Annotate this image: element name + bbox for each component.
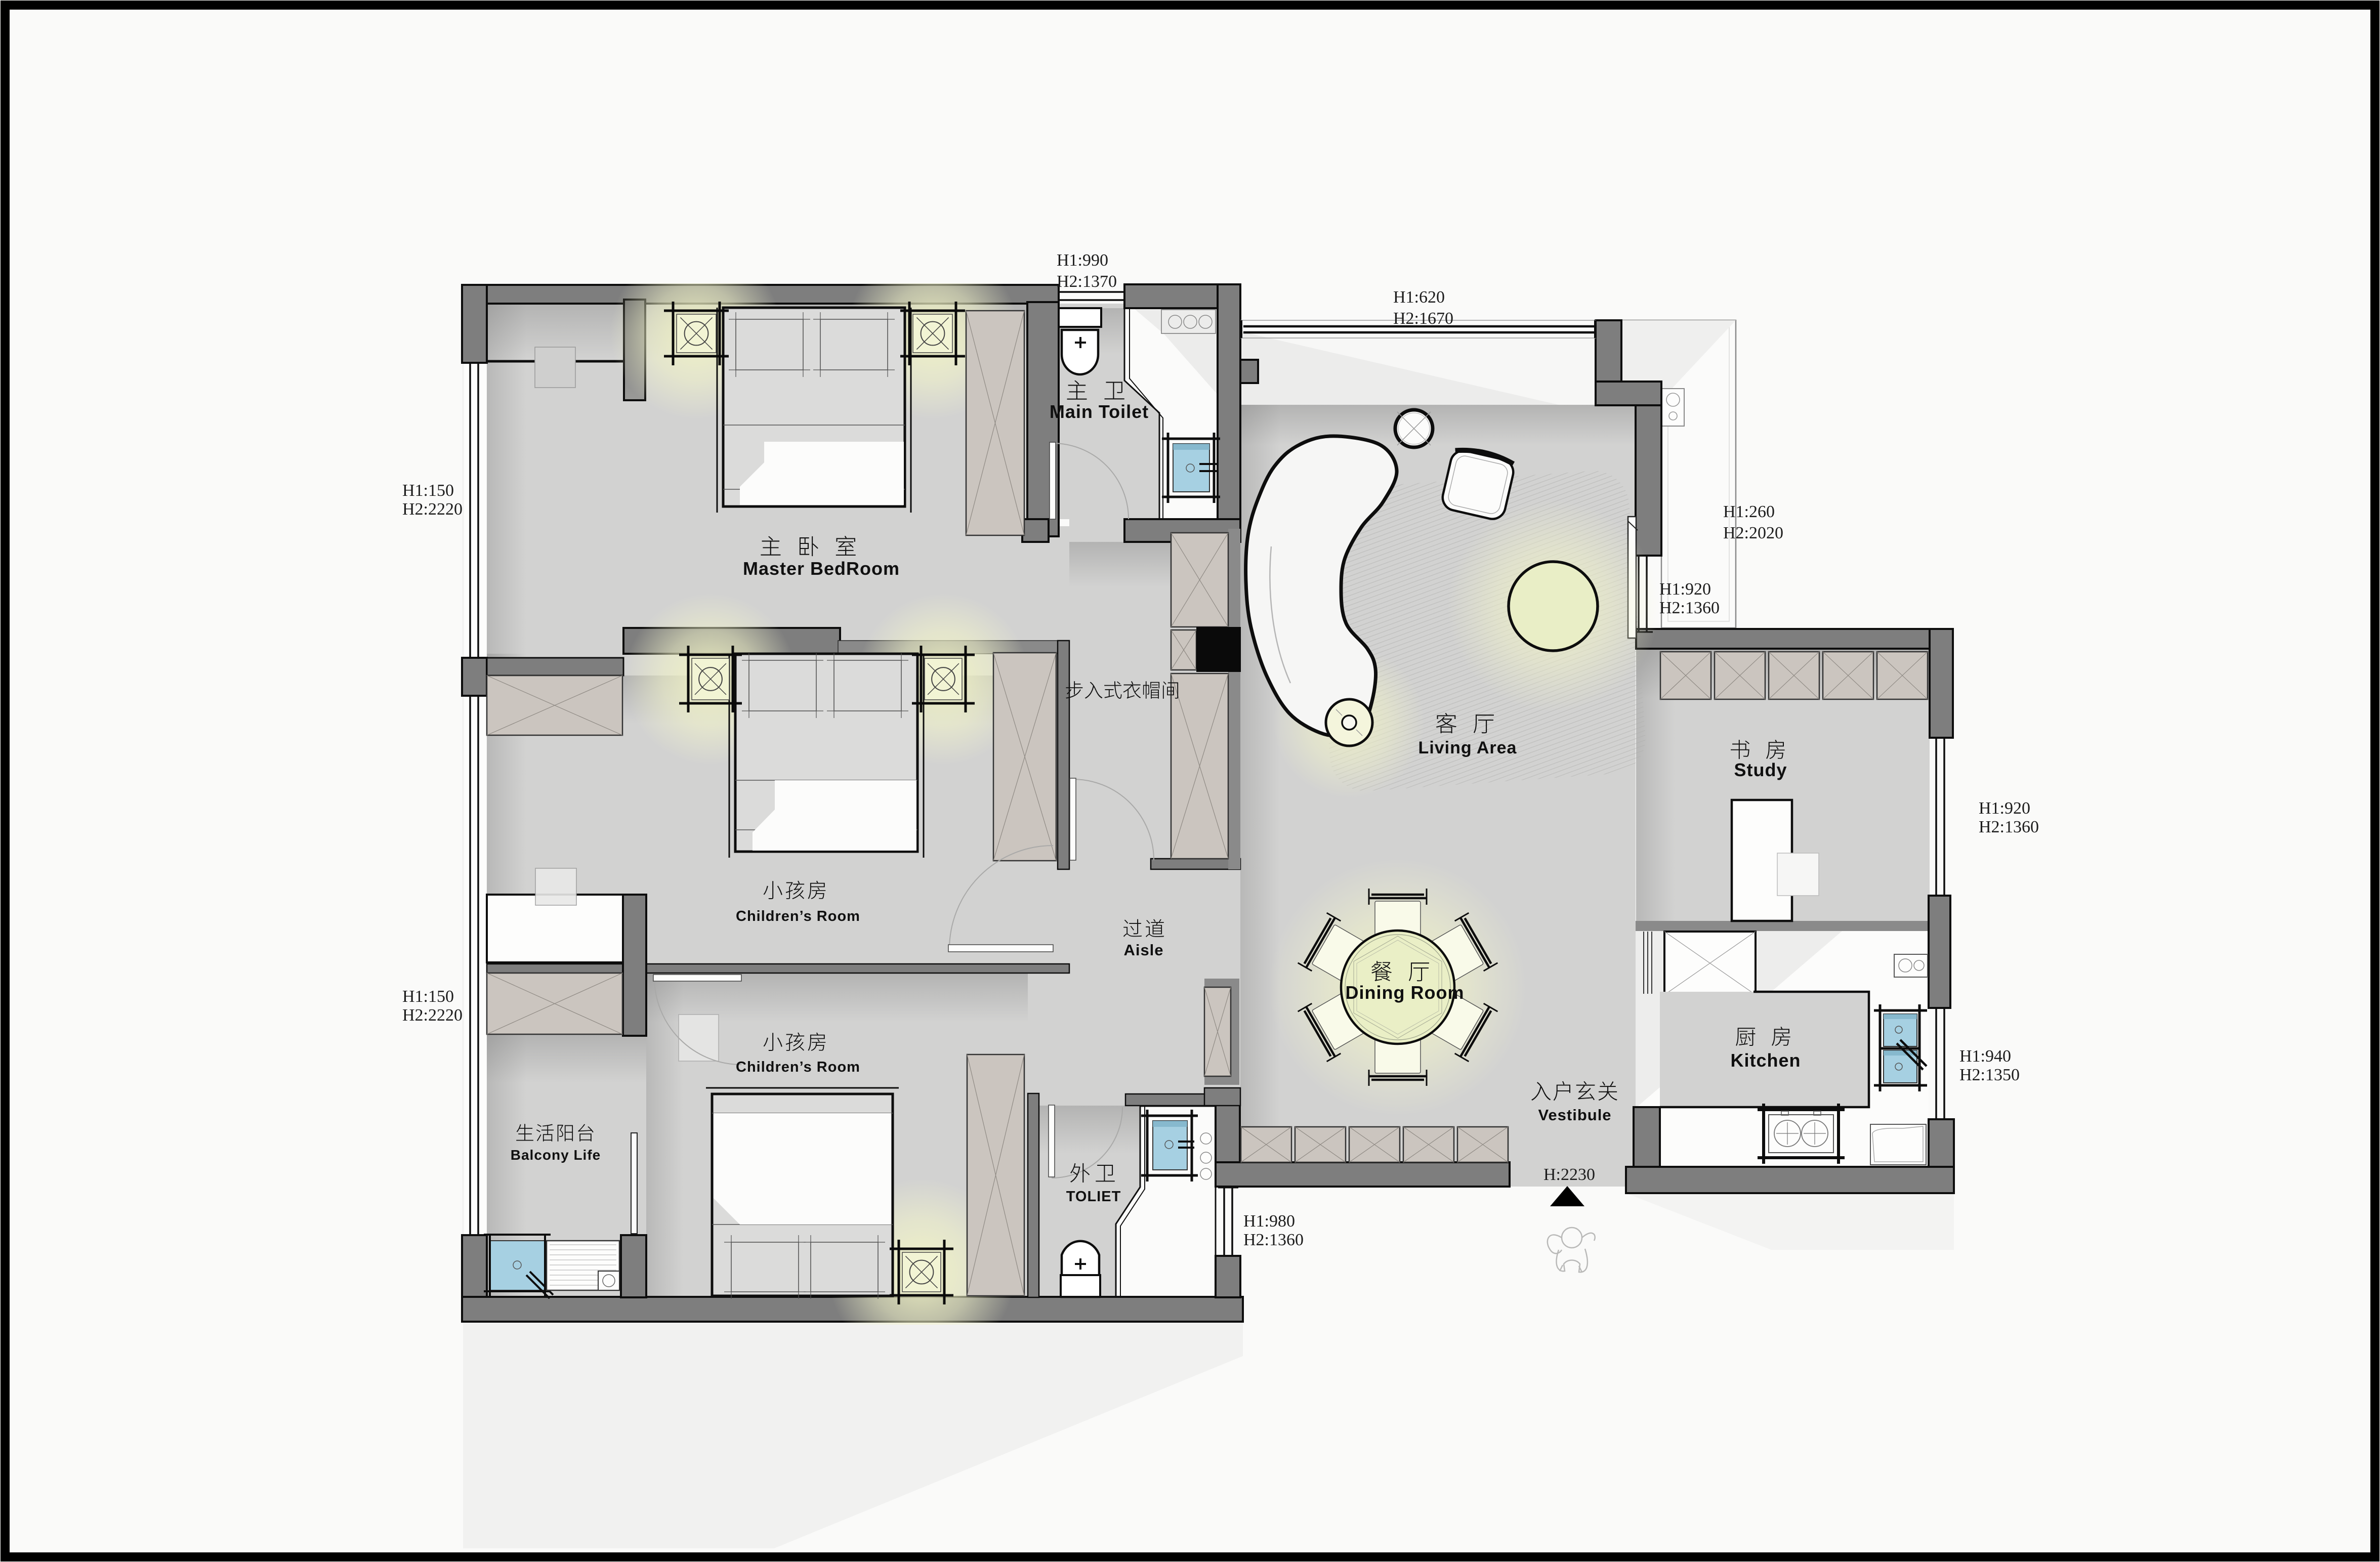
- svg-text:H2:1360: H2:1360: [1243, 1231, 1304, 1249]
- svg-text:Master BedRoom: Master BedRoom: [743, 558, 900, 579]
- svg-text:H2:1360: H2:1360: [1979, 818, 2039, 836]
- svg-text:H1:620: H1:620: [1393, 288, 1445, 307]
- svg-text:H2:1370: H2:1370: [1057, 272, 1117, 291]
- svg-text:Living Area: Living Area: [1418, 738, 1517, 757]
- svg-text:Children’s Room: Children’s Room: [736, 1059, 860, 1075]
- svg-text:Dining Room: Dining Room: [1346, 982, 1465, 1003]
- svg-text:H1:260: H1:260: [1723, 502, 1775, 521]
- svg-text:Vestibule: Vestibule: [1538, 1106, 1611, 1124]
- svg-text:H2:2020: H2:2020: [1723, 524, 1783, 542]
- svg-text:H1:150: H1:150: [402, 481, 454, 500]
- svg-text:H1:940: H1:940: [1959, 1047, 2011, 1066]
- svg-text:H2:2220: H2:2220: [402, 1006, 463, 1025]
- svg-text:H1:920: H1:920: [1659, 580, 1711, 599]
- svg-text:TOLIET: TOLIET: [1066, 1189, 1121, 1205]
- svg-text:H2:2220: H2:2220: [402, 500, 463, 519]
- svg-text:H2:1360: H2:1360: [1659, 599, 1720, 617]
- svg-text:Kitchen: Kitchen: [1730, 1050, 1801, 1071]
- svg-text:H1:980: H1:980: [1243, 1212, 1295, 1231]
- svg-text:H2:1670: H2:1670: [1393, 309, 1453, 328]
- svg-text:H1:920: H1:920: [1979, 799, 2030, 818]
- svg-text:Aisle: Aisle: [1123, 941, 1163, 959]
- svg-text:Study: Study: [1734, 759, 1787, 780]
- svg-text:H1:990: H1:990: [1057, 251, 1108, 270]
- svg-text:Main Toilet: Main Toilet: [1050, 401, 1149, 422]
- svg-text:H:2230: H:2230: [1543, 1165, 1595, 1184]
- svg-text:Balcony Life: Balcony Life: [511, 1147, 601, 1163]
- svg-text:Children’s Room: Children’s Room: [736, 908, 860, 924]
- svg-text:H1:150: H1:150: [402, 987, 454, 1006]
- svg-text:H2:1350: H2:1350: [1959, 1066, 2020, 1084]
